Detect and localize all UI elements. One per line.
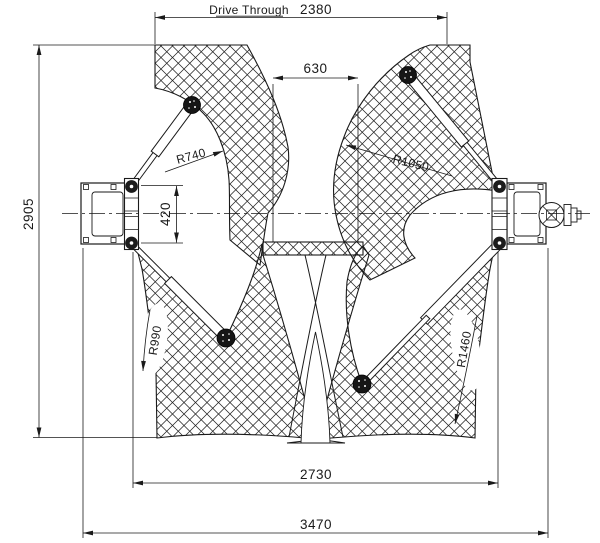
arm-pad-rear-right — [353, 375, 371, 393]
arm-pad-front-right — [400, 67, 417, 84]
drive-through-label: Drive Through — [209, 3, 289, 17]
overlap-lens — [301, 332, 330, 443]
left-post — [81, 179, 139, 250]
post-inner-span-value: 2730 — [300, 467, 332, 482]
radius-label-r740: R740 — [175, 146, 208, 167]
right-post — [492, 179, 581, 250]
arm-pad-front-left — [184, 97, 201, 114]
right-post-inner-frame — [514, 192, 540, 236]
arm-front-left — [131, 101, 196, 185]
hatch-center-strip — [263, 242, 363, 255]
drawing-svg: Drive Through 2380 630 2905 420 2730 347… — [0, 0, 600, 543]
inner-clearance-value: 630 — [303, 61, 327, 76]
overall-depth-value: 2905 — [21, 198, 36, 230]
carriage-width-value: 420 — [158, 202, 173, 226]
arm-pad-rear-left — [217, 329, 235, 347]
lift-plan-drawing: Drive Through 2380 630 2905 420 2730 347… — [0, 0, 600, 543]
power-unit — [539, 203, 581, 228]
motor-gearbox — [564, 205, 571, 226]
overall-width-value: 3470 — [300, 517, 332, 532]
drive-through-value: 2380 — [300, 2, 332, 17]
left-post-inner-frame — [92, 192, 123, 236]
